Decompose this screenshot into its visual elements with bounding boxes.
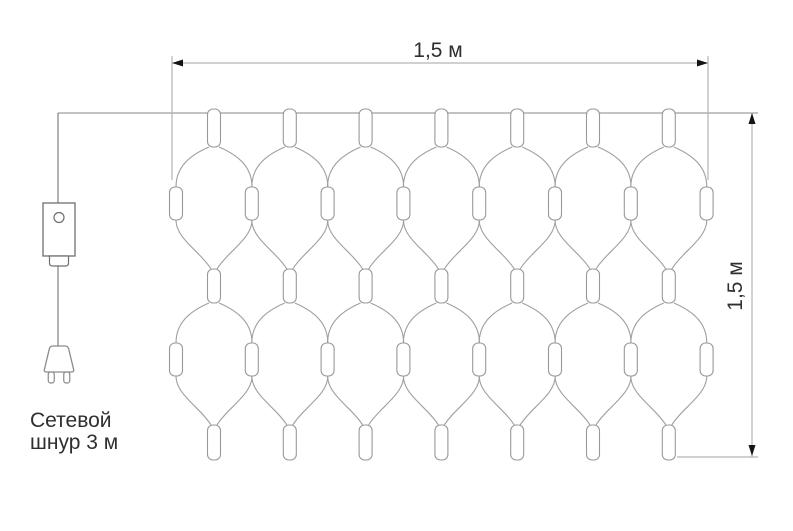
cord-length-label-line1: Сетевой — [30, 409, 112, 432]
net-curve-lower — [479, 376, 514, 425]
bulb-top — [283, 109, 296, 147]
net-curve-upper — [371, 303, 404, 343]
bulb-middle — [359, 269, 372, 303]
net-curve-lower — [520, 220, 555, 269]
net-curve-upper — [446, 303, 479, 343]
net-curve-upper — [176, 303, 209, 343]
net-curve-lower — [444, 220, 479, 269]
bulb-top — [208, 109, 221, 147]
net-curve-upper — [674, 303, 707, 343]
bulb-middle — [587, 269, 600, 303]
bulb-side-tier1 — [700, 187, 713, 220]
net-curve-lower — [176, 220, 211, 269]
net-curve-lower — [672, 376, 707, 425]
net-curve-upper — [295, 147, 328, 187]
bulb-middle — [435, 269, 448, 303]
bulb-side-tier2 — [473, 343, 486, 376]
net-curve-lower — [293, 220, 328, 269]
net-curve-lower — [479, 220, 514, 269]
bulb-top — [511, 109, 524, 147]
bulb-side-tier1 — [170, 187, 183, 220]
net-curve-upper — [555, 147, 588, 187]
controller-box-connector — [50, 256, 69, 266]
bulb-side-tier2 — [245, 343, 258, 376]
net-curve-lower — [672, 220, 707, 269]
diagram-svg: 1,5 м 1,5 м Сетевой шнур 3 м — [0, 0, 793, 531]
bulb-bottom — [511, 425, 524, 460]
net-curve-upper — [176, 147, 209, 187]
bulb-side-tier1 — [321, 187, 334, 220]
net-curve-lower — [520, 376, 555, 425]
net-curve-lower — [293, 376, 328, 425]
power-plug-prong — [64, 372, 70, 383]
net-curve-lower — [631, 376, 666, 425]
bulb-side-tier2 — [549, 343, 562, 376]
bulb-bottom — [435, 425, 448, 460]
bulb-side-tier2 — [170, 343, 183, 376]
bulb-bottom — [587, 425, 600, 460]
bulb-side-tier1 — [473, 187, 486, 220]
net-curve-upper — [479, 147, 512, 187]
net-curve-upper — [446, 147, 479, 187]
net-curve-lower — [369, 220, 404, 269]
power-cord-layer — [43, 113, 75, 383]
net-curve-lower — [217, 376, 252, 425]
bulb-side-tier2 — [624, 343, 637, 376]
bulb-bottom — [208, 425, 221, 460]
net-curve-lower — [403, 220, 438, 269]
net-curve-upper — [522, 303, 555, 343]
net-curve-upper — [252, 147, 285, 187]
bulb-side-tier2 — [700, 343, 713, 376]
net-curve-upper — [631, 303, 664, 343]
arrow-down-icon — [749, 445, 756, 456]
bulb-side-tier2 — [397, 343, 410, 376]
net-curve-lower — [217, 220, 252, 269]
bulb-top — [587, 109, 600, 147]
bulb-middle — [662, 269, 675, 303]
net-curve-lower — [328, 376, 363, 425]
bulb-side-tier1 — [397, 187, 410, 220]
net-curve-upper — [522, 147, 555, 187]
net-curve-lower — [596, 376, 631, 425]
net-curve-upper — [219, 303, 252, 343]
net-curve-lower — [369, 376, 404, 425]
power-plug-prong — [48, 372, 54, 383]
bulb-bottom — [283, 425, 296, 460]
controller-box — [43, 203, 75, 256]
net-curve-upper — [479, 303, 512, 343]
net-curve-lower — [631, 220, 666, 269]
bulbs-layer — [170, 109, 714, 460]
bulb-bottom — [359, 425, 372, 460]
bulb-middle — [283, 269, 296, 303]
bulb-middle — [208, 269, 221, 303]
bulb-side-tier1 — [624, 187, 637, 220]
net-curve-upper — [674, 147, 707, 187]
arrow-left-icon — [172, 60, 183, 67]
diagram-canvas: 1,5 м 1,5 м Сетевой шнур 3 м — [0, 0, 793, 531]
net-curve-lower — [252, 220, 287, 269]
net-curve-upper — [403, 303, 436, 343]
net-mesh-layer — [58, 113, 758, 425]
net-curve-lower — [555, 220, 590, 269]
net-curve-upper — [252, 303, 285, 343]
net-curve-upper — [219, 147, 252, 187]
net-curve-upper — [295, 303, 328, 343]
net-curve-lower — [403, 376, 438, 425]
net-curve-upper — [555, 303, 588, 343]
bulb-top — [662, 109, 675, 147]
net-curve-upper — [403, 147, 436, 187]
bulb-top — [435, 109, 448, 147]
bulb-bottom — [662, 425, 675, 460]
bulb-side-tier2 — [321, 343, 334, 376]
net-curve-upper — [328, 147, 361, 187]
net-curve-upper — [598, 147, 631, 187]
power-plug-body — [44, 346, 74, 372]
net-curve-upper — [328, 303, 361, 343]
bulb-middle — [511, 269, 524, 303]
bulb-side-tier1 — [245, 187, 258, 220]
net-curve-lower — [555, 376, 590, 425]
cord-length-label-line2: шнур 3 м — [30, 431, 118, 454]
bulb-side-tier1 — [549, 187, 562, 220]
width-dimension-label: 1,5 м — [413, 39, 462, 62]
bulb-top — [359, 109, 372, 147]
net-curve-lower — [596, 220, 631, 269]
net-curve-upper — [631, 147, 664, 187]
arrow-right-icon — [697, 60, 708, 67]
net-curve-lower — [252, 376, 287, 425]
arrow-up-icon — [749, 113, 756, 124]
net-curve-upper — [598, 303, 631, 343]
net-curve-lower — [444, 376, 479, 425]
net-curve-lower — [328, 220, 363, 269]
net-curve-upper — [371, 147, 404, 187]
height-dimension-label: 1,5 м — [724, 261, 747, 310]
net-curve-lower — [176, 376, 211, 425]
